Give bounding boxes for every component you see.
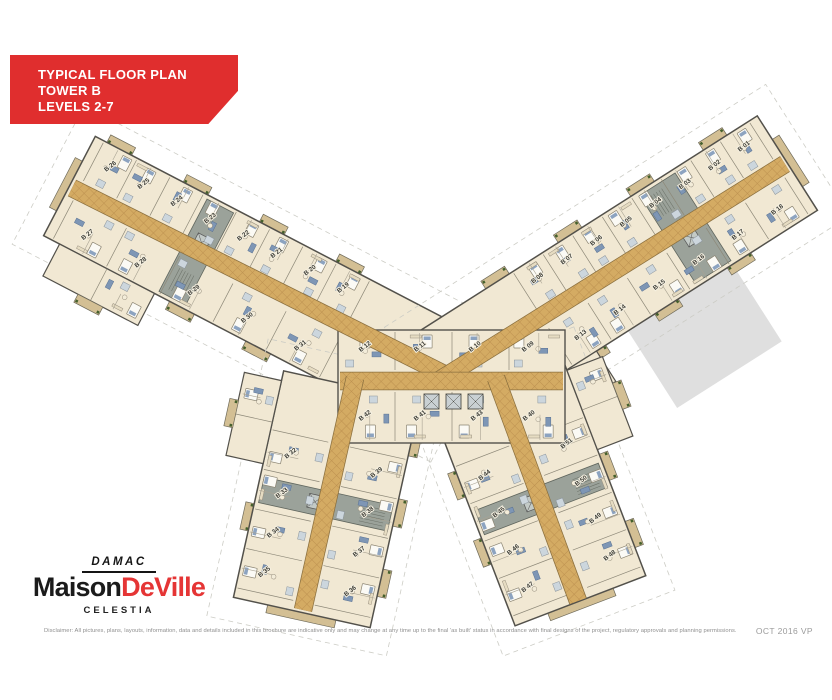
banner-line3: LEVELS 2-7 xyxy=(38,99,238,115)
damac-wordmark: DAMAC xyxy=(91,556,146,568)
date-code: OCT 2016 VP xyxy=(756,626,813,636)
brochure-page: B 19B 20B 21B 22B 23B 24B 25B 26B 31B 30… xyxy=(0,0,832,700)
banner-line1: TYPICAL FLOOR PLAN xyxy=(38,67,238,83)
logo-maison: Maison xyxy=(33,572,121,602)
damac-wordmark-underline: DAMAC xyxy=(82,552,155,573)
banner-line2: TOWER B xyxy=(38,83,238,99)
brand-logo: DAMAC MaisonDeVille CELESTIA xyxy=(18,552,220,616)
disclaimer-text: Disclaimer: All pictures, plans, layouts… xyxy=(44,628,737,634)
logo-deville: DeVille xyxy=(121,572,205,602)
maison-deville-wordmark: MaisonDeVille xyxy=(18,574,220,602)
plan-title-banner: TYPICAL FLOOR PLAN TOWER B LEVELS 2-7 xyxy=(10,55,238,124)
elevator-bank xyxy=(424,394,483,409)
logo-celestia: CELESTIA xyxy=(18,605,220,616)
